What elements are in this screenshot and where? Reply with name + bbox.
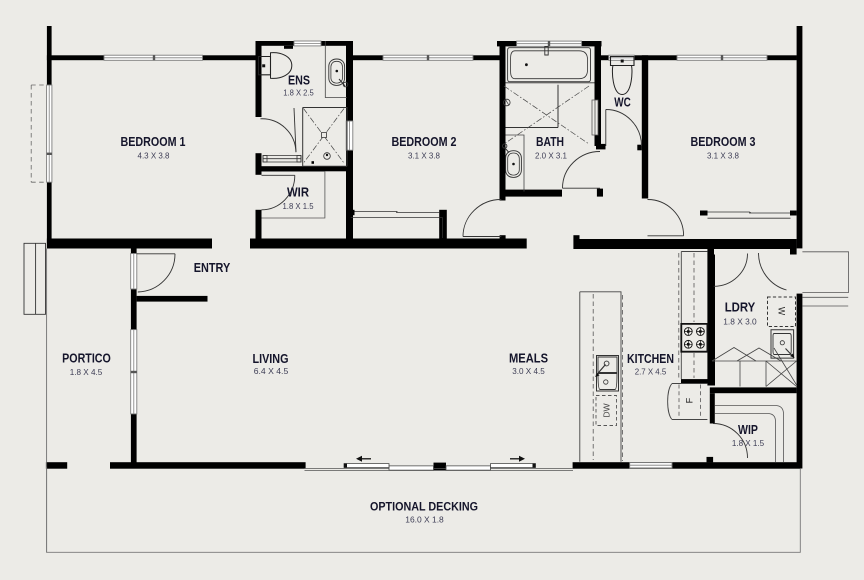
svg-text:BEDROOM 2: BEDROOM 2 [392, 134, 457, 149]
svg-text:ENTRY: ENTRY [194, 260, 231, 275]
svg-text:1.8 X 3.0: 1.8 X 3.0 [723, 317, 757, 327]
svg-text:1.8 X 2.5: 1.8 X 2.5 [283, 88, 314, 98]
svg-text:4.3 X 3.8: 4.3 X 3.8 [138, 150, 170, 160]
svg-text:BEDROOM 3: BEDROOM 3 [691, 134, 756, 149]
svg-text:LIVING: LIVING [253, 351, 289, 366]
svg-text:ENS: ENS [288, 73, 310, 88]
svg-text:1.8 X 1.5: 1.8 X 1.5 [732, 438, 764, 448]
svg-text:2.7 X 4.5: 2.7 X 4.5 [635, 366, 667, 376]
svg-text:3.1 X 3.8: 3.1 X 3.8 [408, 150, 440, 160]
svg-text:WIR: WIR [287, 185, 310, 200]
svg-text:3.1 X 3.8: 3.1 X 3.8 [707, 150, 739, 160]
svg-text:KITCHEN: KITCHEN [627, 351, 674, 366]
svg-text:F: F [685, 397, 695, 403]
svg-text:LDRY: LDRY [725, 299, 756, 314]
svg-text:1.8 X 1.5: 1.8 X 1.5 [283, 201, 314, 211]
svg-text:BATH: BATH [536, 134, 564, 149]
svg-text:16.0 X 1.8: 16.0 X 1.8 [405, 514, 444, 524]
svg-text:3.0 X 4.5: 3.0 X 4.5 [512, 366, 545, 376]
svg-text:OPTIONAL DECKING: OPTIONAL DECKING [370, 501, 478, 513]
svg-text:WC: WC [614, 95, 631, 110]
svg-text:WIP: WIP [738, 422, 758, 437]
svg-text:BEDROOM 1: BEDROOM 1 [121, 134, 186, 149]
svg-text:1.8 X 4.5: 1.8 X 4.5 [70, 367, 103, 377]
svg-text:DW: DW [601, 402, 611, 417]
svg-text:2.0 X 3.1: 2.0 X 3.1 [535, 151, 567, 161]
svg-text:6.4 X 4.5: 6.4 X 4.5 [254, 366, 289, 376]
svg-text:PORTICO: PORTICO [62, 351, 111, 366]
svg-text:MEALS: MEALS [509, 351, 548, 366]
svg-text:W: W [776, 307, 786, 316]
